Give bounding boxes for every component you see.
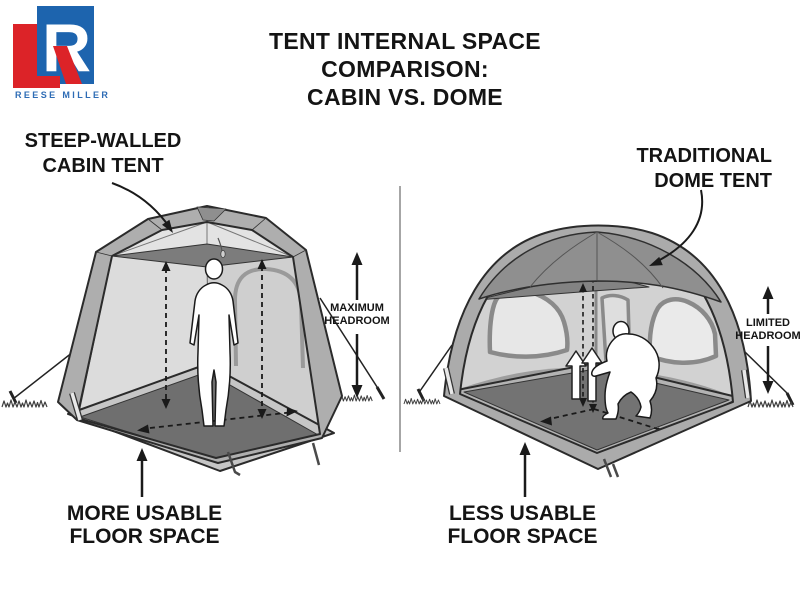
cabin-tent-label: STEEP-WALLED CABIN TENT — [18, 129, 188, 179]
title-line-3: CABIN VS. DOME — [205, 83, 605, 111]
reese-miller-logo-icon: R — [13, 6, 94, 88]
brand-name: REESE MILLER — [15, 90, 110, 100]
title-line-1: TENT INTERNAL SPACE — [205, 27, 605, 55]
dome-tent-illustration — [404, 226, 793, 478]
infographic-canvas: R REESE MILLER TENT INTERNAL SPACE COMPA… — [0, 0, 800, 600]
dome-tent-label: TRADITIONAL DOME TENT — [617, 144, 772, 194]
page-title: TENT INTERNAL SPACE COMPARISON: CABIN VS… — [205, 27, 605, 111]
less-usable-floor-label: LESS USABLE FLOOR SPACE — [440, 502, 605, 548]
more-usable-floor-label: MORE USABLE FLOOR SPACE — [62, 502, 227, 548]
more-floor-space-arrow — [137, 448, 148, 497]
cabin-tent-illustration — [2, 206, 384, 475]
maximum-headroom-label: MAXIMUM HEADROOM — [322, 302, 392, 328]
limited-headroom-label: LIMITED HEADROOM — [733, 317, 800, 343]
title-line-2: COMPARISON: — [205, 55, 605, 83]
less-floor-space-arrow — [520, 442, 531, 497]
